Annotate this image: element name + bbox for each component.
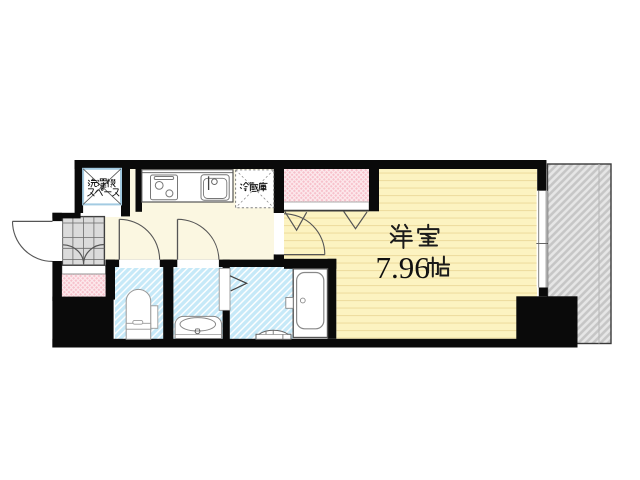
svg-text:7.96: 7.96: [376, 250, 430, 285]
